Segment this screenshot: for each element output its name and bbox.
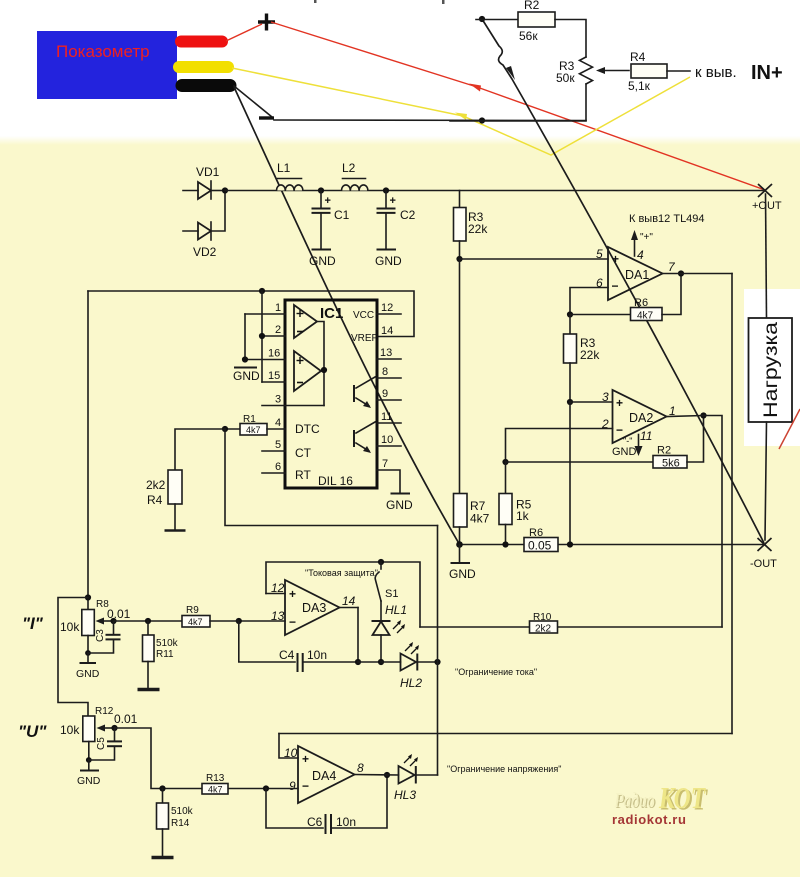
svg-text:3: 3: [602, 390, 609, 404]
svg-text:4k7: 4k7: [470, 512, 490, 526]
svg-text:7: 7: [382, 458, 388, 470]
svg-text:К выв12 TL494: К выв12 TL494: [629, 213, 705, 225]
svg-text:4k7: 4k7: [208, 785, 223, 795]
svg-text:GND: GND: [375, 254, 402, 268]
svg-text:14: 14: [342, 594, 356, 608]
svg-text:HL1: HL1: [385, 603, 407, 617]
svg-text:GND: GND: [386, 498, 413, 512]
svg-text:IN+: IN+: [751, 62, 783, 84]
svg-text:Показометр: Показометр: [56, 42, 150, 61]
svg-text:R6: R6: [529, 527, 543, 539]
svg-text:"Ограничение тока": "Ограничение тока": [455, 667, 537, 677]
svg-text:6: 6: [275, 461, 281, 473]
svg-text:"U": "U": [18, 722, 47, 741]
svg-text:L2: L2: [342, 161, 356, 175]
svg-text:R1: R1: [243, 414, 256, 425]
svg-text:DA3: DA3: [302, 601, 326, 615]
svg-text:-OUT: -OUT: [750, 558, 777, 570]
svg-text:GND: GND: [76, 668, 100, 680]
svg-text:R4: R4: [630, 50, 646, 64]
svg-text:5k6: 5k6: [662, 458, 680, 470]
svg-text:IC1: IC1: [320, 305, 343, 322]
svg-text:R9: R9: [186, 605, 199, 616]
svg-text:4: 4: [637, 248, 644, 262]
svg-text:S1: S1: [385, 588, 398, 600]
svg-text:510k: 510k: [156, 638, 179, 649]
svg-text:R11: R11: [156, 649, 174, 660]
svg-text:"I": "I": [22, 614, 44, 633]
svg-text:2k2: 2k2: [146, 478, 166, 492]
svg-text:VD2: VD2: [193, 245, 217, 259]
svg-text:DIL 16: DIL 16: [318, 474, 353, 488]
svg-text:5: 5: [275, 439, 281, 451]
svg-text:C3: C3: [95, 629, 106, 642]
svg-text:C2: C2: [400, 208, 416, 222]
svg-text:VREF: VREF: [351, 333, 378, 344]
svg-text:9: 9: [289, 779, 296, 793]
svg-text:12: 12: [381, 302, 393, 314]
svg-text:R6: R6: [634, 297, 648, 309]
svg-text:+: +: [616, 396, 623, 410]
svg-text:10n: 10n: [336, 815, 356, 829]
svg-text:+: +: [289, 587, 296, 601]
svg-text:2k2: 2k2: [535, 624, 552, 635]
svg-text:GND: GND: [449, 567, 476, 581]
svg-text:11: 11: [381, 411, 392, 423]
svg-text:+: +: [325, 195, 331, 207]
svg-text:4k7: 4k7: [246, 425, 261, 435]
svg-text:8: 8: [357, 761, 364, 775]
svg-text:L1: L1: [277, 161, 291, 175]
svg-text:10k: 10k: [60, 723, 80, 737]
svg-text:10: 10: [381, 434, 393, 446]
svg-text:VD1: VD1: [196, 165, 220, 179]
svg-text:к выв.: к выв.: [695, 64, 737, 81]
svg-text:13: 13: [380, 347, 392, 359]
svg-text:+: +: [302, 752, 309, 766]
svg-text:4k7: 4k7: [188, 617, 203, 627]
svg-text:R2: R2: [524, 0, 540, 12]
svg-text:0.01: 0.01: [107, 607, 131, 621]
svg-text:0.01: 0.01: [114, 712, 138, 726]
svg-text:22k: 22k: [580, 348, 600, 362]
svg-text:0.05: 0.05: [528, 539, 552, 553]
svg-text:11: 11: [640, 429, 652, 443]
svg-text:15: 15: [268, 370, 280, 382]
svg-text:CT: CT: [295, 446, 312, 460]
svg-text:10k: 10k: [60, 620, 80, 634]
svg-text:5,1к: 5,1к: [628, 79, 651, 93]
svg-text:R13: R13: [206, 773, 225, 784]
svg-text:C5: C5: [96, 737, 107, 750]
svg-text:GND: GND: [77, 775, 101, 787]
svg-text:Нагрузка: Нагрузка: [761, 321, 782, 418]
svg-text:HL2: HL2: [400, 676, 422, 690]
svg-text:22k: 22k: [468, 222, 488, 236]
svg-text:−: −: [302, 779, 309, 793]
svg-text:510k: 510k: [171, 806, 194, 817]
svg-text:−: −: [616, 423, 623, 437]
svg-text:Радио: Радио: [614, 790, 655, 812]
svg-text:"-": "-": [623, 436, 632, 446]
svg-text:−: −: [612, 279, 619, 293]
svg-text:8: 8: [382, 366, 388, 378]
svg-text:DA1: DA1: [625, 268, 649, 282]
svg-text:VCC: VCC: [353, 310, 374, 321]
svg-text:R4: R4: [147, 493, 163, 507]
svg-text:C4: C4: [279, 648, 295, 662]
svg-text:56к: 56к: [519, 29, 538, 43]
svg-text:"+": "+": [640, 232, 653, 243]
svg-text:R2: R2: [657, 445, 671, 457]
svg-text:1k: 1k: [516, 509, 530, 523]
svg-text:C6: C6: [307, 815, 323, 829]
svg-text:GND: GND: [612, 446, 637, 458]
svg-text:R14: R14: [171, 818, 190, 829]
svg-text:КОТ: КОТ: [658, 780, 706, 815]
svg-text:GND: GND: [309, 254, 336, 268]
svg-text:4: 4: [275, 417, 281, 429]
svg-text:DTC: DTC: [295, 422, 320, 436]
svg-text:10: 10: [284, 746, 298, 760]
svg-text:4k7: 4k7: [637, 311, 654, 322]
svg-text:"Ограничение напряжения": "Ограничение напряжения": [447, 764, 561, 774]
svg-text:+OUT: +OUT: [752, 200, 782, 212]
svg-text:3: 3: [275, 394, 281, 406]
svg-text:−: −: [289, 615, 296, 629]
svg-text:9: 9: [382, 388, 388, 400]
svg-text:14: 14: [381, 325, 393, 337]
svg-text:+: +: [390, 195, 396, 207]
svg-text:C1: C1: [334, 208, 350, 222]
svg-text:GND: GND: [233, 369, 260, 383]
svg-text:radiokot.ru: radiokot.ru: [612, 812, 687, 827]
svg-text:RT: RT: [295, 468, 311, 482]
svg-text:DA2: DA2: [629, 411, 653, 425]
svg-text:50к: 50к: [556, 71, 575, 85]
svg-text:R12: R12: [95, 706, 114, 717]
svg-text:+: +: [612, 252, 619, 266]
svg-text:"Токовая защита": "Токовая защита": [305, 568, 378, 578]
svg-text:2: 2: [275, 324, 281, 336]
svg-text:1: 1: [275, 302, 281, 314]
svg-text:10n: 10n: [307, 648, 327, 662]
svg-text:R10: R10: [533, 612, 552, 623]
svg-text:DA4: DA4: [312, 769, 336, 783]
svg-text:5: 5: [596, 247, 603, 261]
svg-text:HL3: HL3: [394, 788, 416, 802]
svg-text:16: 16: [268, 348, 280, 360]
